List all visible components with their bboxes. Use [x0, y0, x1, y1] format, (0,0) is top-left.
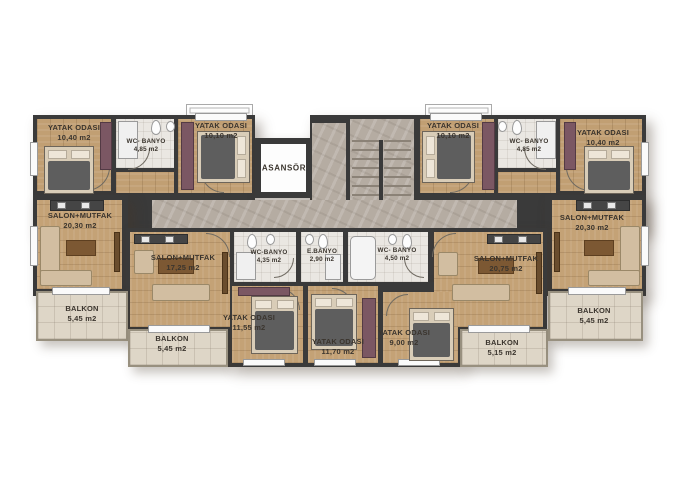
- room-label-balcony-a4: BALKON5,45 m2: [577, 306, 610, 326]
- room-label-balcony-a1: BALKON5,45 m2: [65, 304, 98, 324]
- double-bed: [44, 146, 94, 194]
- wardrobe: [181, 122, 194, 190]
- tv-unit: [114, 232, 120, 272]
- sofa: [588, 270, 640, 286]
- balcony-door: [52, 287, 110, 295]
- sink: [305, 234, 314, 245]
- kitchen-counter: [50, 200, 104, 211]
- armchair: [438, 252, 458, 276]
- room-label-bath-a1: WC- BANYO4,85 m2: [127, 138, 166, 154]
- window: [195, 113, 247, 121]
- room-label-salon-a4: SALON+MUTFAK20,30 m2: [560, 213, 624, 233]
- hall-a4: [498, 172, 556, 193]
- room-label-salon-a3: SALON+MUTFAK20,75 m2: [474, 254, 538, 274]
- kitchen-counter: [487, 234, 541, 244]
- window: [314, 359, 356, 366]
- sofa: [152, 284, 210, 301]
- room-label-salon-a1: SALON+MUTFAK20,30 m2: [48, 211, 112, 231]
- window: [641, 142, 649, 176]
- coffee-table: [584, 240, 614, 256]
- corridor-main: [152, 200, 517, 228]
- sofa: [40, 270, 92, 286]
- sink: [498, 121, 507, 132]
- balcony-door: [148, 325, 210, 333]
- window: [30, 226, 38, 266]
- room-label-ebanyo: E.BANYO2,90 m2: [307, 248, 337, 264]
- window: [243, 359, 285, 366]
- bathtub: [350, 236, 376, 280]
- room-label-balcony-a2: BALKON5,45 m2: [155, 334, 188, 354]
- room-label-bedroom-a1-1040: YATAK ODASI10,40 m2: [48, 123, 100, 143]
- room-label-bath-a4: WC- BANYO4,85 m2: [510, 138, 549, 154]
- toilet: [318, 234, 328, 249]
- sink: [166, 121, 175, 132]
- balcony-door: [568, 287, 626, 295]
- room-label-bedroom-a4-1040: YATAK ODASI10,40 m2: [577, 128, 629, 148]
- room-label-bedroom-a1-1010: YATAK ODASI10,10 m2: [195, 121, 247, 141]
- wardrobe: [564, 122, 576, 170]
- room-label-bedroom-1170: YATAK ODASI11,70 m2: [312, 337, 364, 357]
- room-label-balcony-a3: BALKON5,15 m2: [485, 338, 518, 358]
- room-label-bedroom-1155: YATAK ODASI11,55 m2: [223, 313, 275, 333]
- toilet: [512, 120, 522, 135]
- coffee-table: [66, 240, 96, 256]
- wardrobe: [100, 122, 112, 170]
- stairwell: [350, 119, 414, 213]
- double-bed: [584, 146, 634, 194]
- sofa: [40, 226, 60, 274]
- tv-unit: [554, 232, 560, 272]
- sofa: [620, 226, 640, 274]
- toilet: [247, 234, 257, 249]
- window: [641, 226, 649, 266]
- balcony-door: [468, 325, 530, 333]
- window: [30, 142, 38, 176]
- window: [430, 113, 482, 121]
- room-label-salon-a2: SALON+MUTFAK17,25 m2: [151, 253, 215, 273]
- hall-a1: [116, 172, 174, 193]
- wardrobe: [238, 287, 290, 296]
- sink: [266, 234, 275, 245]
- kitchen-counter: [576, 200, 630, 211]
- tv-unit: [222, 252, 228, 294]
- sofa: [452, 284, 510, 301]
- kitchen-counter: [134, 234, 188, 244]
- elevator-label: ASANSÖR: [262, 164, 306, 175]
- wardrobe: [482, 122, 495, 190]
- wardrobe: [362, 298, 376, 358]
- toilet: [151, 120, 161, 135]
- room-label-wc-450: WC- BANYO4,50 m2: [378, 247, 417, 263]
- room-label-bedroom-a4-1010: YATAK ODASI10,10 m2: [427, 121, 479, 141]
- sink: [388, 234, 397, 245]
- room-label-wc-435: WC-BANYO4,35 m2: [251, 249, 288, 265]
- floor-plan: YATAK ODASI10,40 m2 WC- BANYO4,85 m2 YAT…: [0, 0, 679, 480]
- room-label-bedroom-900: YATAK ODASI9,00 m2: [378, 328, 430, 348]
